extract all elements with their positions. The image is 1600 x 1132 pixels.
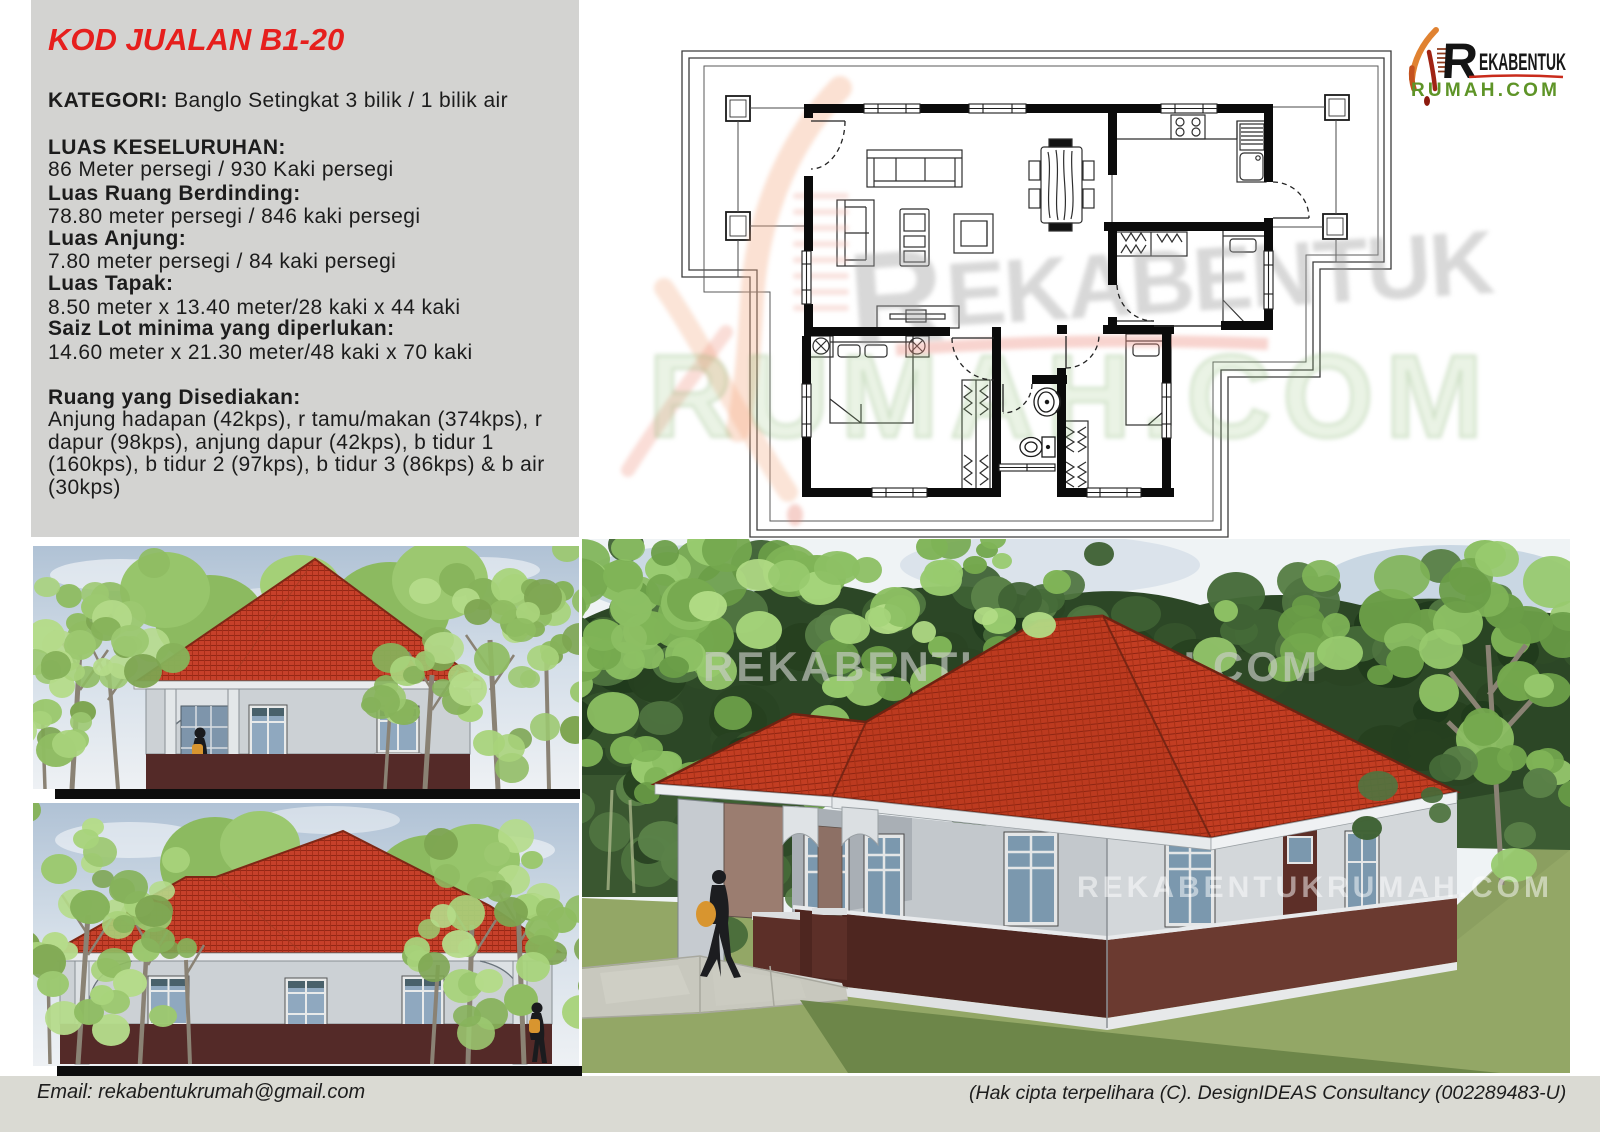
svg-text:REKABENTUKRUMAH.COM: REKABENTUKRUMAH.COM bbox=[1077, 871, 1553, 904]
svg-text:RUMAH.COM: RUMAH.COM bbox=[648, 331, 1494, 463]
svg-text:RUMAH.COM: RUMAH.COM bbox=[1411, 80, 1560, 101]
svg-text:EKABENTUK: EKABENTUK bbox=[1479, 49, 1566, 76]
